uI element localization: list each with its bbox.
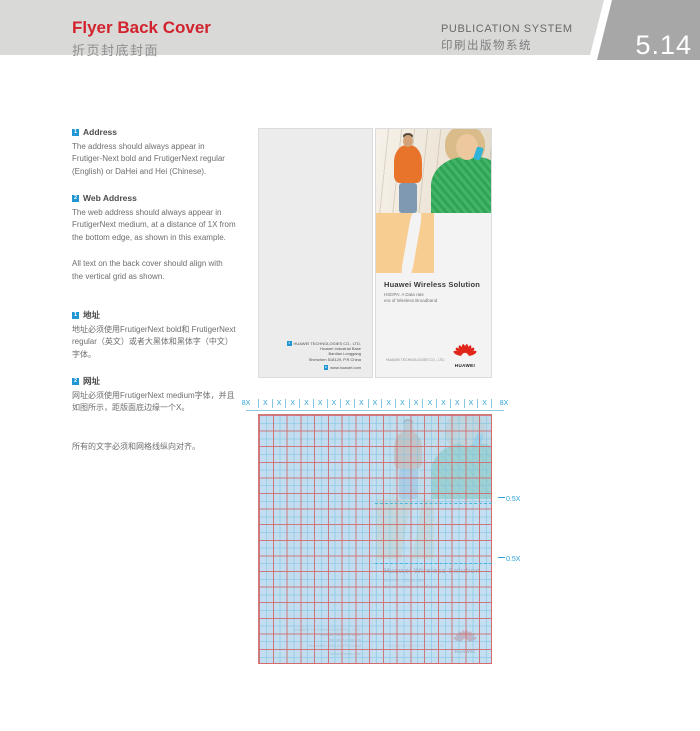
huawei-logo: HUAWEI: [447, 626, 483, 654]
flyer-mockup: 1HUAWEI TECHNOLOGIES CO., LTD. Huawei In…: [258, 128, 492, 378]
cover-photo: [376, 415, 491, 499]
white-slash: [400, 213, 423, 273]
section-heading-label: Address: [83, 126, 117, 139]
flyer-subtitle: era of Wireless Broadband: [384, 584, 480, 590]
flyer-back-panel: HUAWEI TECHNOLOGIES CO., LTD. Huawei Ind…: [258, 414, 373, 664]
address-line: Shenzhen 518129, P.R.China: [294, 643, 362, 648]
photo-woman-figure: [431, 443, 491, 499]
section-heading-label: Web Address: [83, 192, 137, 205]
grid-ruler: 8X XXXXXXXXXXXXXXXXX 8X: [234, 399, 516, 411]
web-address: www.huawei.com: [330, 365, 361, 370]
section-body-web-address-cn: 网址必须使用FrutigerNext medium字体，并且如图所示，距版面底边…: [72, 390, 236, 415]
grid-unit-row: XXXXXXXXXXXXXXXXX: [258, 399, 492, 408]
flyer-address-block: 1HUAWEI TECHNOLOGIES CO., LTD. Huawei In…: [287, 341, 361, 370]
section-heading-address: 1 Address: [72, 126, 236, 139]
web-address: www.huawei.com: [294, 651, 362, 656]
page-title-chinese: 折页封底封面: [72, 40, 159, 59]
callout-2-marker: 2: [324, 365, 329, 370]
grid-unit-label: X: [368, 399, 382, 408]
grid-unit-label: X: [395, 399, 409, 408]
flyer-back-panel: 1HUAWEI TECHNOLOGIES CO., LTD. Huawei In…: [258, 128, 373, 378]
grid-unit-label: X: [340, 399, 354, 408]
grid-unit-label: X: [464, 399, 478, 408]
grid-unit-label: X: [272, 399, 286, 408]
photo-man-head: [403, 421, 413, 433]
flyer-title: Huawei Wireless Solution: [384, 566, 480, 575]
spacing-label-text: 0.5X: [506, 556, 520, 563]
orange-shape: [376, 213, 434, 273]
section-heading-label: 网址: [83, 375, 100, 388]
grid-unit-label: X: [258, 399, 272, 408]
alignment-note: All text on the back cover should align …: [72, 258, 236, 283]
flyer-title-block: Huawei Wireless Solution HSDPA: A Data r…: [384, 280, 480, 304]
system-label: PUBLICATION SYSTEM: [441, 23, 573, 35]
orange-accent-band: [376, 499, 491, 559]
photo-man-legs: [399, 469, 417, 499]
grid-unit-label: X: [422, 399, 436, 408]
grid-unit-label: X: [313, 399, 327, 408]
grid-unit-label: X: [450, 399, 464, 408]
flyer-subtitle: era of Wireless Broadband: [384, 298, 480, 304]
photo-man-legs: [399, 183, 417, 213]
section-heading-label: 地址: [83, 309, 100, 322]
callout-1-marker: 1: [287, 341, 292, 346]
page-title: Flyer Back Cover: [72, 18, 211, 38]
section-heading-web-address-cn: 2 网址: [72, 375, 236, 388]
margin-label-left: 8X: [234, 400, 258, 407]
section-heading-address-cn: 1 地址: [72, 309, 236, 322]
callout-2-marker: 2: [72, 195, 79, 202]
system-label-chinese: 印刷出版物系统: [441, 37, 532, 53]
title-top-guide: [375, 563, 492, 564]
margin-label-right: 8X: [492, 400, 516, 407]
orange-accent-band: [376, 213, 491, 273]
grid-unit-label: X: [381, 399, 395, 408]
photo-man-figure: [394, 431, 422, 469]
spacing-label-text: 0.5X: [506, 496, 520, 503]
spacing-tick: [498, 497, 505, 498]
orange-shape: [376, 499, 434, 559]
spacing-label-photo: 0.5X: [498, 496, 520, 503]
callout-2-marker: 2: [72, 378, 79, 385]
callout-1-marker: 1: [72, 312, 79, 319]
flyer-title: Huawei Wireless Solution: [384, 280, 480, 289]
huawei-logo-text: HUAWEI: [447, 649, 483, 654]
ruler-baseline: [246, 410, 504, 411]
footer-company: HUAWEI TECHNOLOGIES CO., LTD.: [386, 644, 445, 648]
grid-unit-label: X: [285, 399, 299, 408]
photo-woman-figure: [431, 157, 491, 213]
callout-1-marker: 1: [72, 129, 79, 136]
grid-unit-label: X: [299, 399, 313, 408]
flyer-mockup-grid: HUAWEI TECHNOLOGIES CO., LTD. Huawei Ind…: [258, 414, 492, 664]
sidebar-notes: 1 Address The address should always appe…: [72, 126, 236, 467]
grid-unit-label: X: [354, 399, 368, 408]
guideline-page: 5.14 Flyer Back Cover 折页封底封面 PUBLICATION…: [0, 0, 700, 731]
cover-photo: [376, 129, 491, 213]
huawei-flower-icon: [453, 340, 477, 357]
section-body-address-cn: 地址必须使用FrutigerNext bold和 FrutigerNext re…: [72, 324, 236, 362]
page-number: 5.14: [635, 30, 692, 61]
grid-unit-label: X: [409, 399, 423, 408]
grid-unit-label: X: [436, 399, 450, 408]
address-line: Shenzhen 518129, P.R.China: [287, 357, 361, 362]
huawei-logo-text: HUAWEI: [447, 363, 483, 368]
section-heading-web-address: 2 Web Address: [72, 192, 236, 205]
footer-company: HUAWEI TECHNOLOGIES CO., LTD.: [386, 358, 445, 362]
flyer-front-panel: Huawei Wireless Solution HSDPA: A Data r…: [375, 414, 492, 664]
photo-man-head: [403, 135, 413, 147]
white-slash: [400, 499, 423, 559]
flyer-title-block: Huawei Wireless Solution HSDPA: A Data r…: [384, 566, 480, 590]
grid-unit-label: X: [477, 399, 491, 408]
flyer-grid-diagram: HUAWEI TECHNOLOGIES CO., LTD. Huawei Ind…: [258, 414, 492, 664]
flyer-address-block: HUAWEI TECHNOLOGIES CO., LTD. Huawei Ind…: [294, 627, 362, 656]
photo-bottom-guide: [375, 503, 492, 504]
spacing-label-title: 0.5X: [498, 556, 520, 563]
section-body-address: The address should always appear in Frut…: [72, 141, 236, 179]
alignment-note-cn: 所有的文字必须和网格线纵向对齐。: [72, 441, 236, 454]
spacing-tick: [498, 557, 505, 558]
grid-unit-label: X: [327, 399, 341, 408]
huawei-flower-icon: [453, 626, 477, 643]
photo-man-figure: [394, 145, 422, 183]
section-body-web-address: The web address should always appear in …: [72, 207, 236, 245]
page-number-box: 5.14: [597, 0, 700, 60]
huawei-logo: HUAWEI: [447, 340, 483, 368]
flyer-front-panel: Huawei Wireless Solution HSDPA: A Data r…: [375, 128, 492, 378]
